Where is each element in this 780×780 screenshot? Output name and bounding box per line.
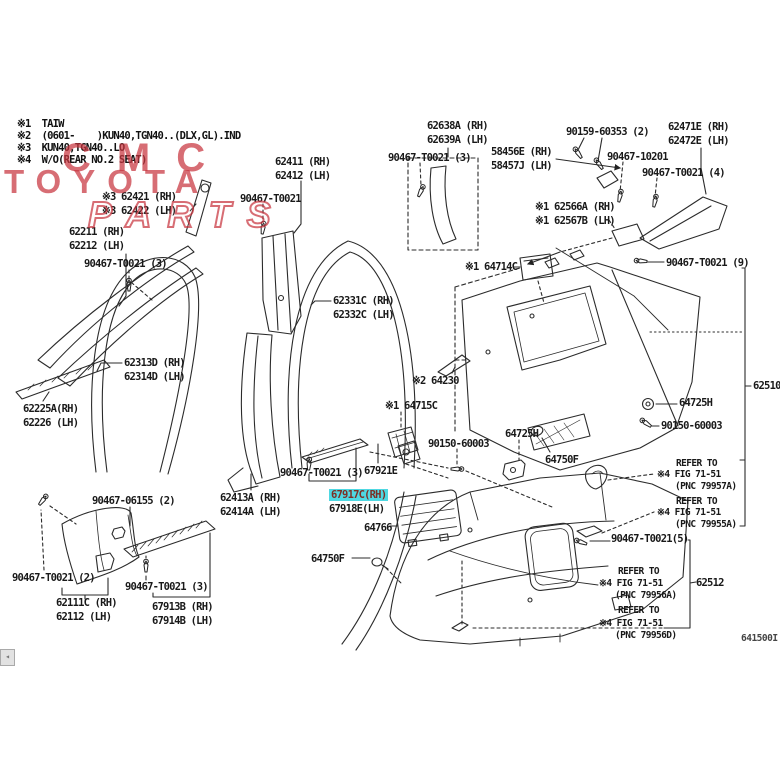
part-label: ※4 FIG 71-51	[657, 470, 721, 481]
part-label: 62510	[753, 380, 780, 392]
note-line: ※3 KUN40,TGN40..LO	[17, 143, 124, 154]
part-label: 58456E (RH)	[491, 146, 552, 158]
part-label: REFER TO	[618, 567, 659, 578]
part-label: (PNC 79956A)	[615, 591, 676, 602]
part-label: 67914B (LH)	[152, 615, 213, 627]
clip-64750F-bottom	[352, 558, 402, 584]
part-label: 90467-06155 (2)	[92, 495, 175, 507]
part-label: (PNC 79957A)	[675, 482, 736, 493]
center-pillar-garnish-upper	[262, 231, 301, 334]
part-label: 64750F	[545, 454, 578, 466]
part-label: 62212 (LH)	[69, 240, 124, 252]
center-pillar-garnish-lower	[228, 333, 280, 492]
note-line: ※2 (0601- )KUN40,TGN40..(DLX,GL).IND	[17, 131, 240, 142]
quarter-trim-panel-upper	[455, 250, 744, 470]
part-label: ※1 62566A (RH)	[535, 201, 615, 213]
part-label: 62412 (LH)	[275, 170, 330, 182]
part-label: ※3 62421 (RH)	[102, 191, 176, 203]
part-label: 90467-T0021 (3)	[388, 152, 471, 164]
garnish-62421	[186, 180, 211, 236]
part-label: 64766	[364, 522, 392, 534]
part-label: REFER TO	[618, 606, 659, 617]
part-label: ※1 64715C	[385, 400, 437, 412]
part-label: 90467-T0021 (4)	[642, 167, 725, 179]
part-label: 90159-60353 (2)	[566, 126, 649, 138]
part-label: 62413A (RH)	[220, 492, 281, 504]
part-label-selected: 67917C(RH)	[329, 489, 388, 501]
part-label: 62226 (LH)	[23, 417, 78, 429]
front-opening-trim-62225A	[16, 360, 110, 399]
part-label: 62411 (RH)	[275, 156, 330, 168]
diagram-code: 641500I	[741, 634, 778, 645]
part-label: ※1 64714C	[465, 261, 517, 273]
part-label: 90467-T0021 (3)	[125, 581, 208, 593]
part-label: 62331C (RH)	[333, 295, 394, 307]
part-label: 90150-60003	[661, 420, 722, 432]
collapse-arrow-button[interactable]: ◂	[0, 649, 15, 666]
quarter-pillar-trim-upper	[408, 158, 478, 250]
part-label: ※4 FIG 71-51	[599, 619, 663, 630]
part-label: 62211 (RH)	[69, 226, 124, 238]
part-label: 62111C (RH)	[56, 597, 117, 609]
part-label: 90467-10201	[607, 151, 668, 163]
bracket-64725H-middle	[503, 440, 525, 480]
part-label: 67913B (RH)	[152, 601, 213, 613]
part-label: 62112 (LH)	[56, 611, 111, 623]
part-label: 64725H	[679, 397, 712, 409]
part-label: 62225A(RH)	[23, 403, 78, 415]
part-label: (PNC 79955A)	[675, 520, 736, 531]
vent-cover-64766	[394, 489, 462, 547]
note-line: ※4 W/O(REAR NO.2 SEAT)	[17, 155, 146, 166]
part-label: 67921E	[364, 465, 397, 477]
part-label: 90467-T0021 (3)	[280, 467, 363, 479]
part-label: 58457J (LH)	[491, 160, 552, 172]
note-line: ※1 TAIW	[17, 119, 64, 130]
part-label: 64725H	[505, 428, 538, 440]
part-label: 90150-60003	[428, 438, 489, 450]
part-label: 62471E (RH)	[668, 121, 729, 133]
part-label: 64750F	[311, 553, 344, 565]
part-label: 62414A (LH)	[220, 506, 281, 518]
part-label: ※4 FIG 71-51	[657, 508, 721, 519]
part-label: 62638A (RH)	[427, 120, 488, 132]
part-label: 90467-T0021	[240, 193, 301, 205]
part-label: (PNC 79956D)	[615, 631, 676, 642]
clip-90467-06155	[112, 527, 125, 539]
part-label: 90467-T0021 (9)	[666, 257, 749, 269]
exploded-parts-drawing	[0, 0, 780, 780]
part-label: 67918E(LH)	[329, 503, 384, 515]
part-label: 90467-T0021 (3)	[84, 258, 167, 270]
part-label: 90467-T0021(5)	[611, 533, 688, 545]
part-label: ※3 62422 (LH)	[102, 205, 176, 217]
part-label: 62472E (LH)	[668, 135, 729, 147]
part-label: 62639A (LH)	[427, 134, 488, 146]
part-label: 62313D (RH)	[124, 357, 185, 369]
parts-diagram-page: CMC TOYOTA PARTS	[0, 0, 780, 780]
part-label: ※1 62567B (LH)	[535, 215, 615, 227]
part-label: 62314D (LH)	[124, 371, 185, 383]
part-label: ※4 FIG 71-51	[599, 579, 663, 590]
bracket-58456E	[556, 159, 620, 188]
part-label: 62332C (LH)	[333, 309, 394, 321]
part-label: 62512	[696, 577, 724, 589]
part-label: ※2 64230	[412, 375, 459, 387]
part-label: 90467-T0021 (2)	[12, 572, 95, 584]
